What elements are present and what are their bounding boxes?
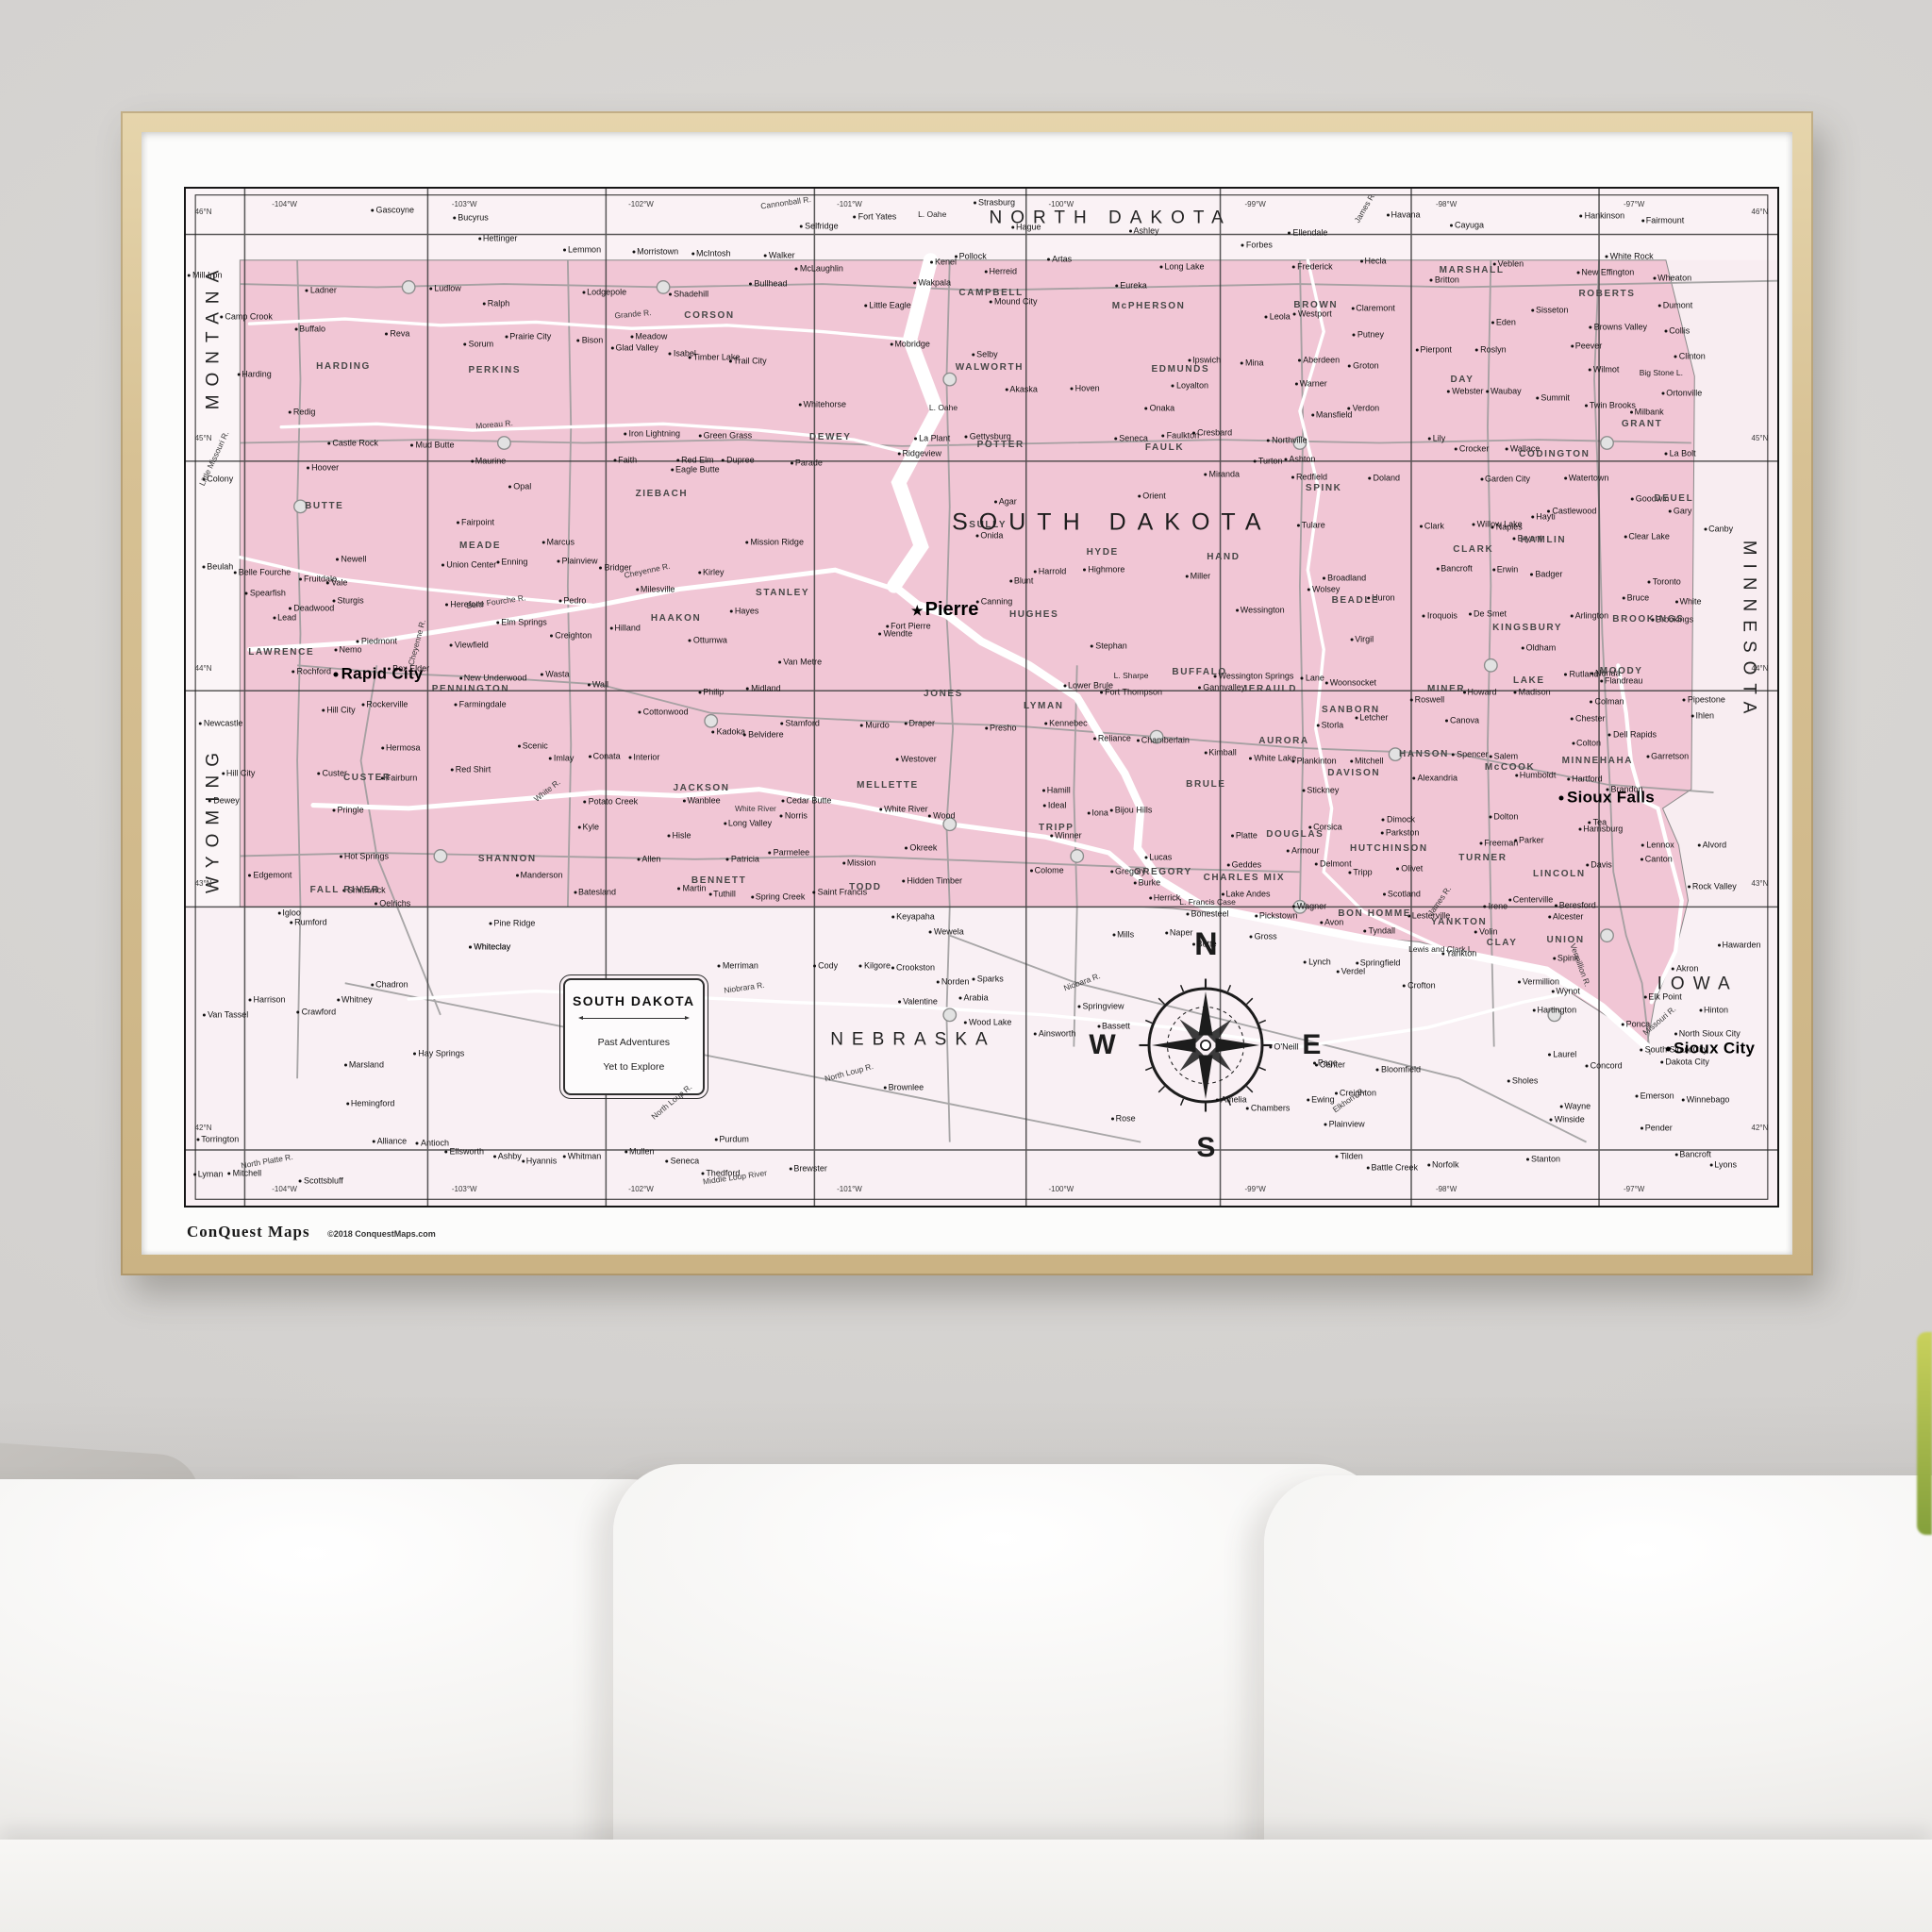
town-label: Belle Fourche <box>234 569 291 577</box>
county-label: TODD <box>849 883 882 892</box>
town-label: Maurine <box>471 457 507 465</box>
town-label: Canova <box>1445 716 1479 724</box>
county-label: CODINGTON <box>1519 450 1590 459</box>
town-label: Canby <box>1704 525 1733 534</box>
compass-west-label: W <box>1089 1029 1115 1061</box>
town-label: Union Center <box>441 560 496 569</box>
town-label: Storla <box>1317 722 1344 730</box>
town-label: Stamford <box>780 720 820 728</box>
town-label: Cottonwood <box>639 708 689 717</box>
town-label: Clinton <box>1674 352 1706 360</box>
town-label: Virgil <box>1350 635 1374 643</box>
town-label: Arlington <box>1571 611 1609 620</box>
county-label: MINER <box>1427 685 1465 694</box>
town-label: Hermosa <box>381 743 421 752</box>
town-label: Alliance <box>373 1138 408 1146</box>
town-label: Iroquois <box>1423 611 1457 620</box>
county-label: GREGORY <box>1134 868 1192 877</box>
county-label: BENNETT <box>691 876 746 886</box>
map-surface: SOUTH DAKOTA Past Adventures Yet to Expl… <box>184 187 1779 1207</box>
town-label: Arabia <box>959 994 989 1003</box>
town-label: Ludlow <box>429 284 461 292</box>
town-label: Gascoyne <box>372 206 415 214</box>
town-label: Winnebago <box>1682 1095 1730 1104</box>
town-label: Verdel <box>1337 968 1366 976</box>
town-label: McIntosh <box>691 249 731 258</box>
white-couch <box>0 1460 1932 1932</box>
town-label: Peever <box>1571 342 1603 351</box>
town-label: Faith <box>613 456 637 464</box>
town-label: Bijou Hills <box>1110 806 1153 814</box>
town-label: Selfridge <box>800 222 839 230</box>
town-label: Ashby <box>493 1153 522 1161</box>
town-label: Havana <box>1387 211 1421 220</box>
town-label: Hecla <box>1359 257 1386 265</box>
couch-back-cushion <box>1264 1475 1932 1890</box>
town-label: Draper <box>904 720 935 728</box>
town-label: Bloomfield <box>1376 1065 1421 1074</box>
town-label: Iron Lightning <box>625 429 681 438</box>
town-label: Roswell <box>1410 696 1445 705</box>
town-label: Gary <box>1669 507 1692 515</box>
county-label: CLAY <box>1487 939 1518 948</box>
town-label: Camp Crook <box>220 312 273 321</box>
town-label: Davis <box>1586 860 1612 869</box>
town-label: Crawford <box>297 1008 337 1017</box>
town-label: Milbank <box>1630 408 1664 417</box>
town-label: Edgemont <box>248 871 291 879</box>
town-label: Sholes <box>1507 1077 1539 1086</box>
town-label: Rochford <box>292 668 332 676</box>
town-label: Gross <box>1250 933 1277 941</box>
longitude-label: -103°W <box>452 201 477 208</box>
town-label: Loyalton <box>1172 382 1208 391</box>
town-label: Plainview <box>1324 1120 1365 1128</box>
county-label: HANSON <box>1399 750 1449 759</box>
town-label: Rockerville <box>361 700 408 708</box>
town-label: Turton <box>1254 457 1283 465</box>
town-label: Wewela <box>929 928 964 937</box>
town-label: Chester <box>1571 714 1606 723</box>
county-label: BRULE <box>1186 780 1225 790</box>
county-label: McPHERSON <box>1112 302 1186 311</box>
town-label: Sisseton <box>1531 307 1569 315</box>
latitude-label: 42°N <box>195 1124 212 1132</box>
longitude-label: -104°W <box>272 1186 297 1193</box>
town-label: Newcastle <box>199 720 243 728</box>
wood-picture-frame: SOUTH DAKOTA Past Adventures Yet to Expl… <box>121 111 1813 1275</box>
town-label: Scenic <box>518 741 548 750</box>
town-label: Kenel <box>930 258 957 266</box>
county-label: BON HOMME <box>1338 909 1411 919</box>
major-city-label: Sioux City <box>1666 1040 1755 1056</box>
town-label: Merriman <box>718 961 758 970</box>
town-label: Roslyn <box>1475 346 1507 355</box>
town-label: Keyapaha <box>891 912 935 921</box>
town-label: Fort Yates <box>854 213 897 222</box>
town-label: Seneca <box>666 1157 700 1165</box>
county-label: FAULK <box>1145 443 1184 453</box>
town-label: Fairpoint <box>457 518 494 526</box>
town-label: Geddes <box>1227 860 1262 869</box>
town-label: Mission <box>842 858 876 867</box>
county-label: PENNINGTON <box>432 685 510 694</box>
town-label: Avon <box>1320 919 1343 927</box>
town-label: Spearfish <box>245 590 286 598</box>
town-label: Wilmot <box>1589 365 1620 374</box>
county-label: HARDING <box>316 362 371 372</box>
town-label: Hankinson <box>1580 212 1625 221</box>
town-label: Whiteclay <box>469 943 510 952</box>
town-label: Norris <box>780 812 808 821</box>
town-label: Blunt <box>1009 577 1034 586</box>
town-label: Seneca <box>1114 435 1148 443</box>
town-label: Centerville <box>1508 895 1554 904</box>
town-label: Claremont <box>1351 305 1395 313</box>
compass-rose-icon <box>1135 974 1276 1116</box>
legend-yet-to-explore: Yet to Explore <box>603 1061 664 1073</box>
town-label: Hinton <box>1699 1007 1728 1015</box>
town-label: Wolsey <box>1307 585 1340 593</box>
town-label: Elk Point <box>1643 993 1682 1002</box>
county-label: HUGHES <box>1009 610 1058 620</box>
town-label: Garretson <box>1646 752 1689 760</box>
town-label: Cayuga <box>1450 221 1484 229</box>
town-label: Kyle <box>578 823 600 831</box>
lake-label: L. Oahe <box>929 404 958 412</box>
latitude-label: 45°N <box>1752 435 1769 442</box>
town-label: Conata <box>589 752 621 760</box>
county-label: FALL RIVER <box>310 886 380 895</box>
state-name-label: MONTANA <box>204 262 222 410</box>
town-label: Pickstown <box>1255 911 1298 920</box>
town-label: Wheaton <box>1653 274 1691 282</box>
brand-credit-line: ConQuest Maps ©2018 ConquestMaps.com <box>187 1223 436 1241</box>
county-label: CUSTER <box>343 774 391 783</box>
town-label: Putney <box>1353 331 1384 340</box>
town-label: Green Grass <box>699 431 753 440</box>
couch-seat <box>0 1840 1932 1932</box>
county-label: PERKINS <box>468 366 521 375</box>
town-label: Selby <box>972 350 998 358</box>
town-label: Wall <box>588 681 608 690</box>
county-label: CORSON <box>684 311 735 321</box>
town-label: Lodgepole <box>582 288 626 296</box>
town-label: Hill City <box>222 769 256 777</box>
town-label: Mills <box>1112 931 1134 940</box>
town-label: Clear Lake <box>1624 532 1670 541</box>
county-label: DOUGLAS <box>1266 830 1324 840</box>
town-label: Hawarden <box>1717 941 1760 950</box>
county-label: BEADLE <box>1332 596 1380 606</box>
town-label: Whitehorse <box>799 400 847 408</box>
longitude-label: -99°W <box>1245 1186 1266 1193</box>
county-label: LAKE <box>1513 676 1545 686</box>
town-label: Deadwood <box>289 605 334 613</box>
town-label: Chamberlain <box>1137 737 1190 745</box>
legend-divider <box>582 1018 686 1019</box>
town-label: Farmingdale <box>455 700 507 708</box>
town-label: Lemmon <box>563 245 601 254</box>
town-label: Harrison <box>249 996 286 1005</box>
county-label: SPINK <box>1306 484 1342 493</box>
town-label: La Plant <box>914 435 950 443</box>
longitude-label: -98°W <box>1436 1186 1457 1193</box>
capital-city-label: ★Pierre <box>911 600 978 619</box>
town-label: Redig <box>289 408 316 417</box>
town-label: Pedro <box>558 596 586 605</box>
latitude-label: 43°N <box>1752 880 1769 888</box>
county-label: SANBORN <box>1322 706 1380 715</box>
town-label: Ainsworth <box>1034 1029 1076 1038</box>
town-label: Miller <box>1186 572 1211 580</box>
town-label: Wood Lake <box>964 1018 1011 1026</box>
town-label: Bucyrus <box>453 214 489 223</box>
town-label: Parade <box>791 459 823 468</box>
latitude-label: 44°N <box>1752 665 1769 673</box>
brand-name: ConQuest Maps <box>187 1223 310 1241</box>
plant-leaf-sliver <box>1917 1332 1932 1535</box>
town-label: Mitchell <box>228 1169 262 1177</box>
county-label: TURNER <box>1458 854 1507 863</box>
latitude-label: 45°N <box>195 435 212 442</box>
town-label: Pipestone <box>1683 696 1725 705</box>
town-label: New Effington <box>1576 269 1634 277</box>
county-label: UNION <box>1547 936 1585 945</box>
town-label: Plankinton <box>1292 757 1337 765</box>
lake-label: Big Stone L. <box>1640 369 1683 377</box>
town-label: Badger <box>1530 570 1562 578</box>
town-label: Springview <box>1078 1002 1124 1010</box>
town-label: Webster <box>1447 387 1483 395</box>
longitude-label: -97°W <box>1624 1186 1644 1193</box>
town-label: Kennebec <box>1044 720 1088 728</box>
town-label: Pine Ridge <box>489 920 535 928</box>
county-label: SHANNON <box>478 855 537 864</box>
county-label: JERAULD <box>1242 685 1297 694</box>
town-label: Oelrichs <box>375 899 410 908</box>
town-label: Harrold <box>1034 568 1067 576</box>
town-label: Morristown <box>632 247 678 256</box>
town-label: Stickney <box>1302 787 1339 795</box>
town-label: Mound City <box>990 297 1038 306</box>
town-label: Warner <box>1295 379 1327 388</box>
town-label: Verdon <box>1348 404 1380 412</box>
town-label: Hayes <box>730 608 759 616</box>
town-label: White <box>1675 597 1702 606</box>
town-label: Lynch <box>1304 958 1331 967</box>
town-label: Manderson <box>515 871 562 879</box>
longitude-label: -102°W <box>628 201 654 208</box>
state-name-label: SOUTH DAKOTA <box>952 510 1272 534</box>
town-label: Delmont <box>1315 859 1352 868</box>
town-label: Bonesteel <box>1187 909 1229 918</box>
town-label: Colome <box>1030 867 1064 875</box>
town-label: Lead <box>273 613 296 622</box>
town-label: Parkston <box>1381 829 1420 838</box>
town-label: Castle Rock <box>327 439 378 447</box>
state-name-label: NORTH DAKOTA <box>990 209 1232 227</box>
county-label: ROBERTS <box>1578 290 1635 299</box>
town-label: Nemo <box>335 646 362 655</box>
compass-east-label: E <box>1302 1029 1321 1061</box>
town-label: Crookston <box>891 963 935 972</box>
county-label: LYMAN <box>1024 702 1064 711</box>
town-label: Erwin <box>1492 566 1519 575</box>
town-label: Broadland <box>1323 574 1366 582</box>
latitude-label: 46°N <box>195 208 212 216</box>
town-label: Scotland <box>1383 891 1421 899</box>
town-label: Burke <box>1134 879 1161 888</box>
town-label: La Bolt <box>1665 450 1696 458</box>
town-label: Chadron <box>371 981 408 990</box>
town-label: Glad Valley <box>611 344 658 353</box>
town-label: Canning <box>976 597 1013 606</box>
town-label: Potato Creek <box>584 798 639 807</box>
town-label: Clark <box>1420 522 1444 530</box>
town-label: Torrington <box>196 1135 239 1143</box>
town-label: O'Neill <box>1269 1042 1298 1051</box>
longitude-label: -101°W <box>837 1186 862 1193</box>
longitude-label: -100°W <box>1048 1186 1074 1193</box>
river-label: White River <box>735 804 776 812</box>
town-label: Wakpala <box>913 279 951 288</box>
county-label: DEWEY <box>809 433 852 442</box>
town-label: Lyons <box>1709 1160 1737 1169</box>
couch-back-cushion <box>0 1479 698 1894</box>
town-label: Reliance <box>1093 735 1131 743</box>
county-label: HYDE <box>1087 548 1119 558</box>
town-label: Rock Valley <box>1688 882 1737 891</box>
longitude-label: -98°W <box>1436 201 1457 208</box>
county-label: JONES <box>924 690 963 699</box>
town-label: Hill City <box>322 707 356 715</box>
town-label: Dell Rapids <box>1608 730 1657 739</box>
town-label: Patricia <box>726 856 759 864</box>
town-label: Concord <box>1586 1062 1623 1071</box>
town-label: Sparks <box>973 974 1004 983</box>
town-label: Garden City <box>1480 475 1530 484</box>
county-label: BROOKINGS <box>1612 615 1684 625</box>
town-label: Enning <box>496 558 527 566</box>
town-label: Bison <box>577 336 604 344</box>
town-label: Hilland <box>609 624 641 632</box>
county-label: JACKSON <box>674 784 730 793</box>
town-label: Van Tassel <box>203 1011 248 1020</box>
town-label: Batesland <box>574 888 616 896</box>
town-label: Chambers <box>1246 1104 1291 1112</box>
town-label: Ortonville <box>1661 389 1702 397</box>
town-label: Long Lake <box>1160 263 1205 272</box>
town-label: Alcester <box>1548 912 1584 921</box>
county-label: EDMUNDS <box>1151 365 1209 375</box>
town-label: Willow Lake <box>1473 520 1523 528</box>
town-label: Crocker <box>1455 444 1490 453</box>
county-label: CLARK <box>1453 545 1493 555</box>
town-label: Vermillion <box>1518 977 1559 986</box>
town-label: Forbes <box>1241 241 1273 250</box>
town-label: Akron <box>1672 964 1699 973</box>
county-label: DAVISON <box>1327 769 1380 778</box>
town-label: Groton <box>1348 361 1379 370</box>
town-label: Viewfield <box>450 641 489 650</box>
town-label: Leola <box>1265 312 1291 321</box>
town-label: Brownlee <box>884 1083 924 1091</box>
town-label: Creighton <box>550 632 591 641</box>
town-label: Bassett <box>1097 1023 1130 1031</box>
town-label: Milesville <box>636 585 675 593</box>
town-label: Red Elm <box>676 456 714 464</box>
town-label: Philip <box>698 688 724 696</box>
town-label: Dimock <box>1382 816 1415 824</box>
town-label: Bullhead <box>749 280 787 289</box>
town-label: Kadoka <box>712 727 746 736</box>
town-label: Scottsbluff <box>299 1177 343 1186</box>
county-label: ZIEBACH <box>636 490 689 499</box>
town-label: Cody <box>813 961 838 970</box>
town-label: North Sioux City <box>1674 1029 1740 1038</box>
latitude-label: 44°N <box>195 665 212 673</box>
state-name-label: IOWA <box>1657 974 1739 992</box>
town-label: Cedar Butte <box>781 796 831 805</box>
county-label: MOODY <box>1600 667 1643 676</box>
town-label: Howard <box>1463 688 1497 696</box>
county-label: WALWORTH <box>956 363 1024 373</box>
town-label: Wessington <box>1236 607 1285 615</box>
town-label: Newell <box>336 556 366 564</box>
town-label: White Rock <box>1606 253 1654 261</box>
town-label: Highmore <box>1083 566 1124 575</box>
town-label: Eden <box>1491 319 1516 327</box>
town-label: Akaska <box>1005 386 1038 394</box>
town-label: Eagle Butte <box>671 465 720 474</box>
town-label: Strasburg <box>974 199 1015 208</box>
town-label: Doland <box>1369 475 1401 483</box>
town-label: Ladner <box>306 286 337 294</box>
town-label: Midland <box>746 685 781 693</box>
town-label: Hartford <box>1567 775 1603 784</box>
lake-label: Lewis and Clark L. <box>1408 945 1474 954</box>
town-label: Stephan <box>1091 642 1127 651</box>
town-label: Winside <box>1550 1116 1585 1124</box>
town-label: Imlay <box>549 754 575 762</box>
longitude-label: -99°W <box>1245 201 1266 208</box>
longitude-label: -97°W <box>1624 201 1644 208</box>
major-city-label: Sioux Falls <box>1559 789 1655 805</box>
town-label: Hot Springs <box>340 853 389 861</box>
town-label: Shadehill <box>669 291 708 299</box>
county-label: BUFFALO <box>1172 668 1226 677</box>
town-label: Opal <box>508 482 531 491</box>
town-label: Herrick <box>1149 894 1181 903</box>
lake-label: L. Oahe <box>918 210 946 219</box>
county-label: MINNEHAHA <box>1562 757 1634 766</box>
major-city-label: Rapid City <box>334 666 424 682</box>
town-label: Wood <box>928 812 955 821</box>
town-label: Wynot <box>1551 987 1579 995</box>
town-label: Elm Springs <box>496 619 547 627</box>
town-label: Amelia <box>1216 1095 1247 1104</box>
town-label: Madison <box>1514 688 1551 696</box>
town-label: Spring Creek <box>751 893 806 902</box>
town-label: Igloo <box>277 908 301 917</box>
town-label: Page <box>1313 1059 1338 1068</box>
town-label: Tuthill <box>708 891 736 899</box>
town-label: Miranda <box>1204 470 1240 478</box>
town-label: Fort Thompson <box>1100 688 1162 696</box>
county-label: DEUEL <box>1654 494 1693 504</box>
state-name-label: MINNESOTA <box>1740 541 1757 723</box>
